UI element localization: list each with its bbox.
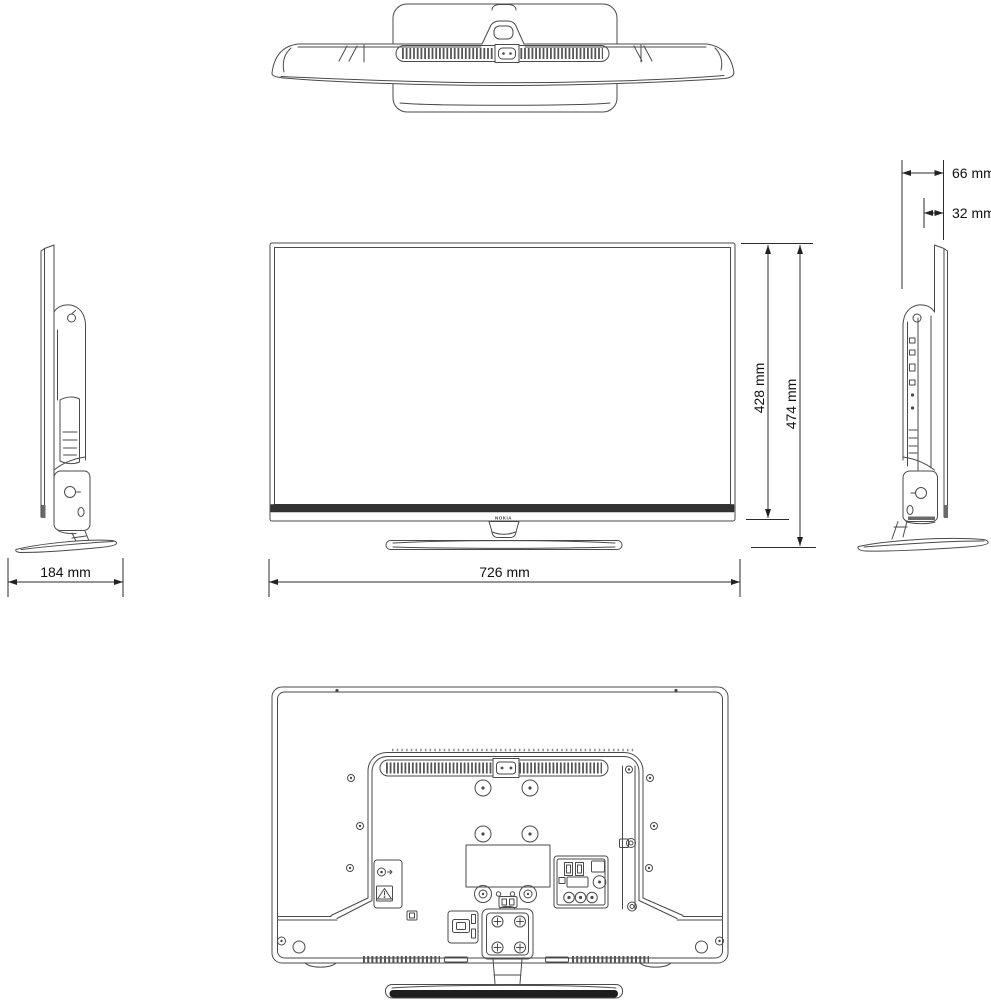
dimension-width-total: 726 mm bbox=[269, 559, 740, 597]
stand-base-right-view bbox=[858, 538, 988, 551]
hdmi-port bbox=[592, 861, 605, 872]
usb-port bbox=[565, 863, 573, 876]
left-side-view-drawing bbox=[16, 245, 117, 553]
rating-label-back-view bbox=[466, 845, 550, 887]
screen-panel-right-view bbox=[944, 249, 948, 517]
front-view-drawing: NOKIA bbox=[270, 243, 735, 550]
top-view-drawing bbox=[272, 4, 734, 112]
dimension-height-panel: 428 mm bbox=[741, 244, 813, 520]
warning-label-panel bbox=[374, 860, 402, 908]
dimension-label-726mm: 726 mm bbox=[479, 564, 530, 580]
power-inlet-panel bbox=[448, 911, 478, 943]
nokia-logo: NOKIA bbox=[495, 516, 512, 521]
vesa-mount-holes bbox=[475, 780, 538, 842]
dimension-label-66mm: 66 mm bbox=[952, 165, 991, 181]
dimension-label-428mm: 428 mm bbox=[751, 363, 767, 414]
diagram-canvas: NOKIA bbox=[0, 0, 991, 1000]
rear-housing-left-view bbox=[54, 471, 90, 531]
dimension-stand-depth: 184 mm bbox=[8, 558, 123, 597]
screen-panel-left-view bbox=[41, 249, 45, 517]
stand-neck-front-view bbox=[489, 522, 519, 538]
dimension-depth-panel: 32 mm bbox=[924, 198, 991, 228]
dimension-label-474mm: 474 mm bbox=[783, 379, 799, 430]
stand-neck-right-view bbox=[892, 522, 907, 540]
connector-panel-back-view bbox=[554, 856, 608, 908]
dimension-label-32mm: 32 mm bbox=[952, 205, 991, 221]
tv-outline-front-view bbox=[270, 243, 735, 521]
tv-dimensions-diagram: NOKIA bbox=[0, 0, 991, 1000]
right-side-view-drawing bbox=[858, 245, 988, 551]
screen-front-view bbox=[275, 248, 731, 505]
stand-mount-plate bbox=[482, 906, 533, 959]
usb-port bbox=[576, 863, 584, 876]
dimension-depth-total: 66 mm bbox=[902, 160, 991, 289]
dimension-label-184mm: 184 mm bbox=[40, 564, 91, 580]
back-view-drawing bbox=[272, 687, 728, 998]
bottom-bar-front-view bbox=[271, 505, 734, 513]
